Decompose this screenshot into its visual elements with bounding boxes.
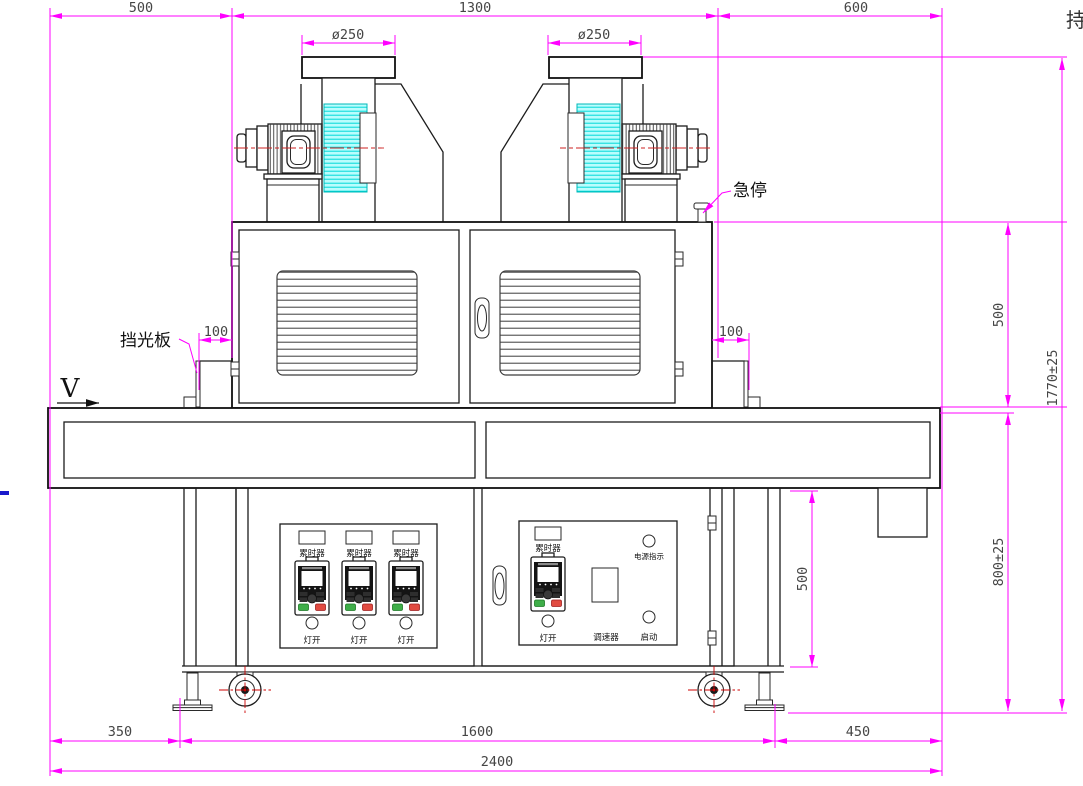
dim-body-height: 500	[991, 303, 1007, 327]
hinge-icon	[231, 362, 239, 376]
direction-label: V	[60, 374, 81, 404]
hinge-icon	[675, 252, 683, 266]
dim-bottom-left: 350	[108, 724, 132, 740]
lamp-switch-label: 灯开	[397, 635, 415, 646]
hinge-icon	[708, 631, 716, 645]
timer-device[interactable]	[342, 557, 376, 615]
base-frame	[182, 488, 784, 672]
direction-arrow: V	[57, 374, 99, 404]
cabinet-handle	[493, 566, 506, 605]
power-indicator-lamp	[643, 535, 655, 547]
edge-blue-mark	[0, 491, 9, 495]
timer-device[interactable]	[295, 557, 329, 615]
fan-unit-left	[234, 57, 443, 222]
irradiation-chamber	[231, 222, 712, 408]
counter-window	[346, 531, 372, 544]
hinge-icon	[708, 516, 716, 530]
counter-window	[299, 531, 325, 544]
leveling-foot-left	[173, 673, 212, 711]
dim-bottom-right: 450	[846, 724, 870, 740]
lamp-switch[interactable]	[542, 615, 554, 627]
lamp-switch-label: 灯开	[539, 633, 557, 644]
caster-left	[219, 666, 271, 714]
emergency-stop-leader	[703, 191, 731, 213]
side-electrical-box	[878, 488, 927, 537]
lamp-switch[interactable]	[400, 617, 412, 629]
timer-label: 累时器	[535, 543, 561, 554]
dim-frame-inner-height: 500	[795, 567, 811, 591]
fan-unit-right	[501, 57, 710, 222]
speed-controller-label: 调速器	[593, 633, 619, 643]
dim-work-height: 800±25	[991, 538, 1007, 587]
dim-overall-height: 1770±25	[1045, 350, 1061, 407]
dim-overall-width: 2400	[481, 754, 514, 770]
emergency-stop-button	[694, 203, 709, 222]
light-shield-label: 挡光板	[120, 331, 171, 351]
drawing-canvas: 累时器 累时器 累时器 灯开 灯开 灯开 累时器 灯开 调速器 电源指示 启动 …	[0, 0, 1083, 786]
dim-top-left: 500	[129, 0, 153, 16]
counter-window	[393, 531, 419, 544]
dim-top-center: 1300	[459, 0, 492, 16]
lamp-switch-label: 灯开	[350, 635, 368, 646]
lamp-switch-label: 灯开	[303, 635, 321, 646]
engineering-drawing: 累时器 累时器 累时器 灯开 灯开 灯开 累时器 灯开 调速器 电源指示 启动 …	[0, 0, 1083, 786]
start-label: 启动	[640, 632, 658, 643]
light-shield-left	[184, 361, 232, 407]
dim-bottom-center: 1600	[461, 724, 494, 740]
door-handle	[475, 298, 489, 338]
lamp-switch[interactable]	[353, 617, 365, 629]
conveyor-table	[48, 408, 940, 488]
control-panel-left: 累时器 累时器 累时器 灯开 灯开 灯开	[280, 524, 437, 648]
counter-window	[535, 527, 561, 540]
dim-shield-left: 100	[204, 324, 228, 340]
light-shield-leader	[179, 339, 197, 373]
speed-controller[interactable]	[592, 568, 618, 602]
dim-shield-right: 100	[719, 324, 743, 340]
start-button[interactable]	[643, 611, 655, 623]
edge-clipped-text: 持	[1066, 8, 1083, 32]
timer-device[interactable]	[531, 553, 565, 611]
power-indicator-label: 电源指示	[634, 551, 664, 561]
lamp-switch[interactable]	[306, 617, 318, 629]
louver-vent-left	[277, 271, 417, 375]
dim-top-right: 600	[844, 0, 868, 16]
hinge-icon	[675, 362, 683, 376]
control-panel-right: 累时器 灯开 调速器 电源指示 启动	[519, 521, 677, 645]
emergency-stop-label: 急停	[733, 181, 767, 201]
dim-fan-diameter-left: ø250	[332, 27, 365, 43]
caster-right	[688, 666, 740, 714]
louver-vent-right	[500, 271, 640, 375]
dim-fan-diameter-right: ø250	[578, 27, 611, 43]
light-shield-right	[712, 361, 760, 407]
timer-device[interactable]	[389, 557, 423, 615]
leveling-foot-right	[745, 673, 784, 711]
